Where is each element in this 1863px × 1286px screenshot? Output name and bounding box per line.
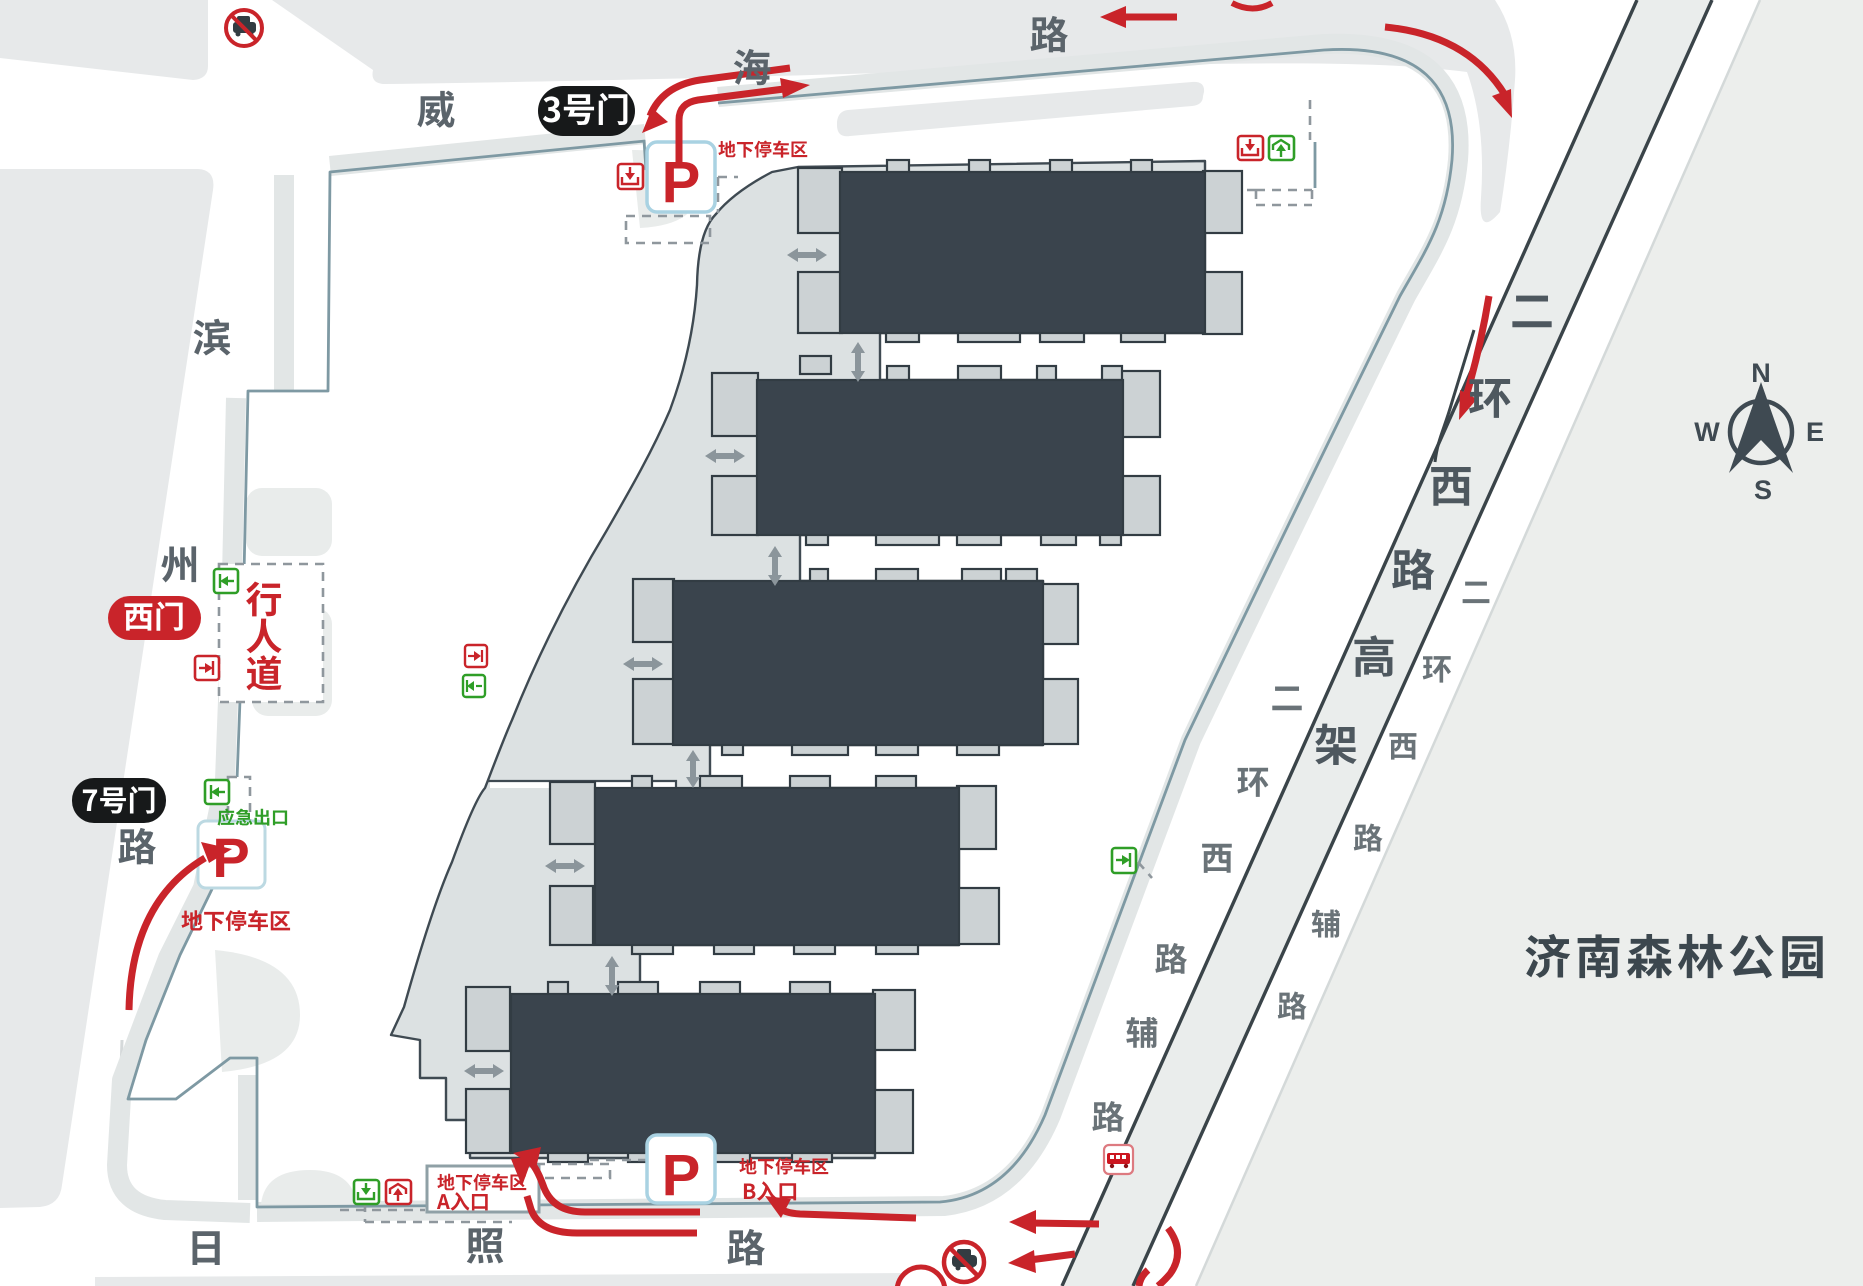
svg-text:S: S xyxy=(1754,475,1772,505)
svg-text:P: P xyxy=(662,1143,701,1208)
svg-text:N: N xyxy=(1751,358,1771,388)
svg-text:E: E xyxy=(1806,417,1824,447)
svg-text:W: W xyxy=(1694,417,1720,447)
